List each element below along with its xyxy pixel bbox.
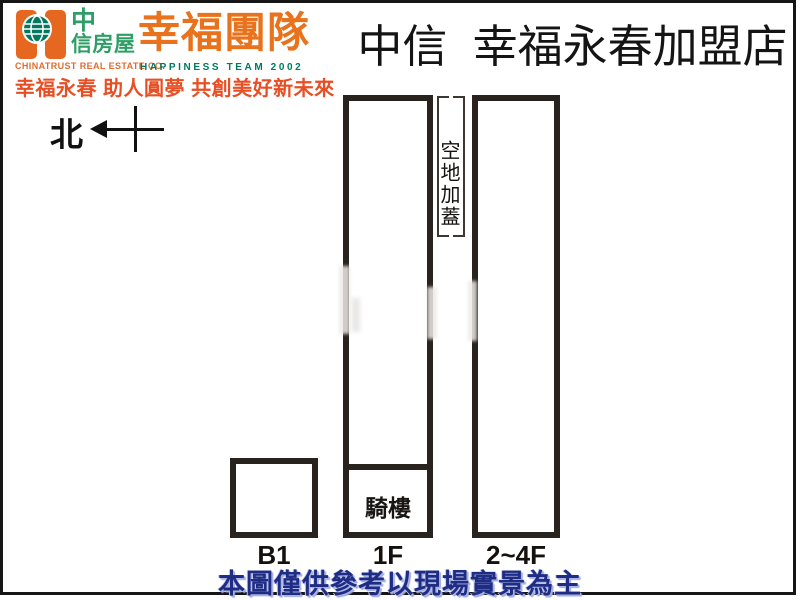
open-space-annotation: 空地加蓋 xyxy=(439,124,463,244)
brand-name-line2: 信房屋 xyxy=(71,33,136,57)
property-layout-page: 中 信房屋 CHINATRUST REAL ESTATE CO. 幸福團隊 HA… xyxy=(0,0,800,600)
compass-north-label: 北 xyxy=(50,108,83,156)
building-2-4f-outline xyxy=(472,95,560,538)
arcade-label: 騎樓 xyxy=(346,489,430,523)
building-b1-outline xyxy=(230,458,318,538)
globe-icon xyxy=(21,13,53,45)
dimension-line-right xyxy=(463,96,465,237)
dimension-tick xyxy=(453,96,463,98)
compass-cross-line xyxy=(134,106,137,152)
brand-name-line1: 中 xyxy=(71,8,96,34)
arcade-separator-line xyxy=(343,464,433,470)
page-title: 中信 幸福永春加盟店 xyxy=(350,10,795,75)
dimension-tick xyxy=(439,96,449,98)
chinatrust-logo-mark xyxy=(16,10,66,60)
brand-tagline: 幸福永春 助人圓夢 共創美好新未來 xyxy=(15,72,335,101)
watermark-artifact xyxy=(427,287,437,339)
watermark-artifact xyxy=(339,266,350,334)
team-name: 幸福團隊 xyxy=(138,8,310,58)
north-arrowhead-icon xyxy=(90,120,107,138)
watermark-artifact xyxy=(352,298,360,332)
watermark-artifact xyxy=(468,281,477,341)
disclaimer-notice: 本圖僅供參考以現場實景為主 xyxy=(150,562,650,600)
